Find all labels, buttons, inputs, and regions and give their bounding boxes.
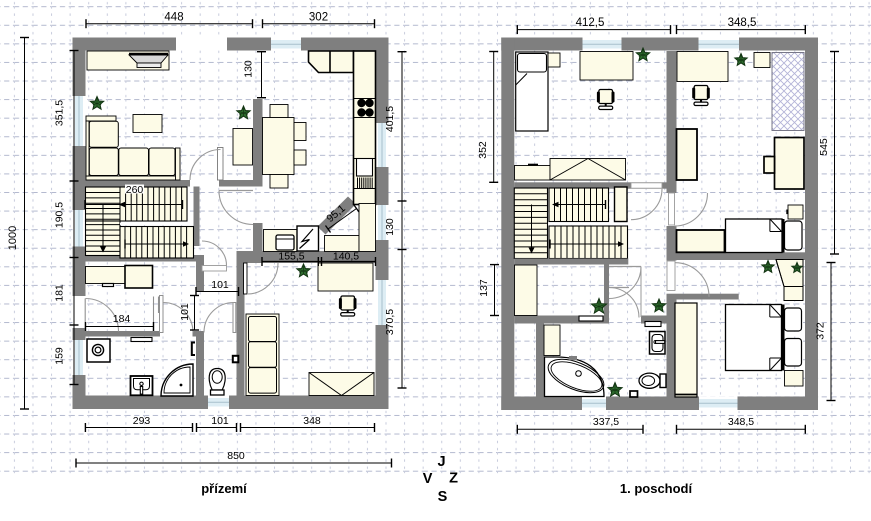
svg-text:1. poschodí: 1. poschodí xyxy=(620,481,693,496)
svg-text:293: 293 xyxy=(133,415,151,427)
svg-text:348,5: 348,5 xyxy=(728,17,757,29)
svg-text:J: J xyxy=(437,454,445,470)
svg-text:140,5: 140,5 xyxy=(333,251,359,263)
svg-text:351,5: 351,5 xyxy=(54,100,66,126)
svg-text:159: 159 xyxy=(54,347,66,365)
svg-text:130: 130 xyxy=(243,60,255,78)
svg-text:850: 850 xyxy=(227,450,245,462)
svg-text:448: 448 xyxy=(164,12,183,24)
svg-text:S: S xyxy=(438,489,448,505)
svg-text:352: 352 xyxy=(477,141,489,159)
svg-text:101: 101 xyxy=(211,415,229,427)
svg-text:260: 260 xyxy=(126,184,144,196)
svg-text:101: 101 xyxy=(179,303,191,321)
svg-text:V: V xyxy=(423,471,433,487)
svg-text:370,5: 370,5 xyxy=(384,309,396,335)
svg-text:372: 372 xyxy=(815,322,827,340)
svg-text:184: 184 xyxy=(113,313,131,325)
svg-text:190,5: 190,5 xyxy=(54,202,66,228)
svg-text:412,5: 412,5 xyxy=(576,17,605,29)
svg-text:137: 137 xyxy=(478,279,490,297)
svg-text:1000: 1000 xyxy=(7,226,19,250)
svg-text:545: 545 xyxy=(818,138,830,156)
svg-text:401,5: 401,5 xyxy=(384,106,396,132)
svg-text:181: 181 xyxy=(54,284,66,302)
svg-text:Z: Z xyxy=(449,471,458,487)
svg-text:348,5: 348,5 xyxy=(728,416,754,428)
svg-text:přízemí: přízemí xyxy=(201,481,247,496)
svg-text:337,5: 337,5 xyxy=(593,416,619,428)
svg-text:302: 302 xyxy=(309,12,328,24)
svg-text:130: 130 xyxy=(384,218,396,236)
svg-text:101: 101 xyxy=(211,279,229,291)
svg-text:155,5: 155,5 xyxy=(278,251,304,263)
svg-text:348: 348 xyxy=(303,415,321,427)
